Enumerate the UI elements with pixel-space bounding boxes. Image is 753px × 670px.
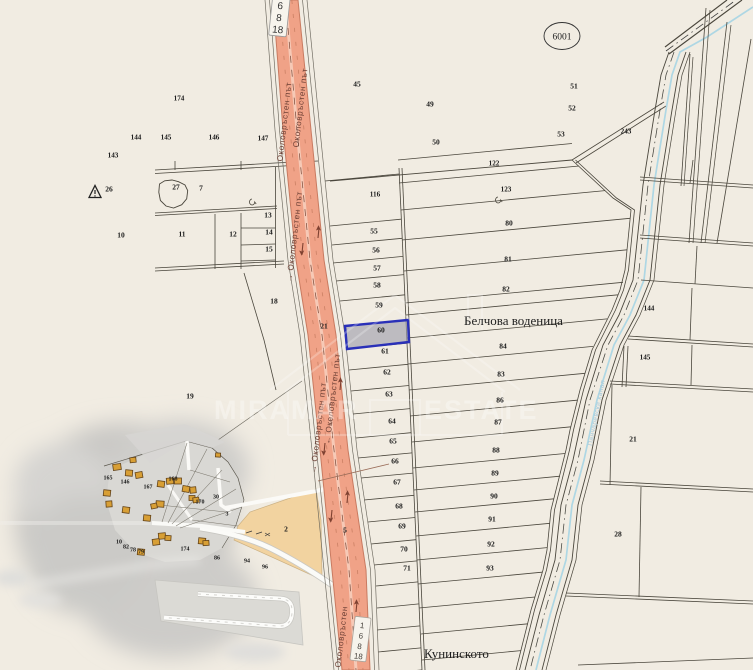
svg-text:147: 147 [258, 135, 269, 143]
svg-text:68: 68 [395, 502, 403, 511]
svg-text:18: 18 [353, 651, 363, 661]
svg-text:96: 96 [262, 565, 268, 571]
svg-text:167: 167 [144, 485, 153, 491]
svg-text:123: 123 [501, 186, 512, 194]
svg-text:26: 26 [105, 185, 113, 194]
svg-text:18: 18 [272, 24, 285, 36]
svg-text:55: 55 [370, 227, 378, 236]
svg-text:3: 3 [226, 512, 229, 518]
svg-text:83: 83 [497, 370, 505, 379]
svg-text:53: 53 [557, 130, 565, 139]
svg-text:58: 58 [373, 281, 381, 290]
svg-text:80: 80 [505, 219, 513, 228]
svg-text:60: 60 [377, 326, 385, 335]
svg-text:145: 145 [640, 354, 651, 362]
svg-text:86: 86 [496, 396, 504, 405]
svg-text:MIRAMAR: MIRAMAR [214, 395, 358, 425]
svg-text:59: 59 [375, 301, 383, 310]
svg-text:69: 69 [398, 522, 406, 531]
svg-text:146: 146 [209, 134, 220, 142]
svg-text:52: 52 [568, 104, 576, 113]
svg-text:122: 122 [489, 160, 500, 168]
svg-text:78: 78 [130, 548, 136, 554]
svg-text:67: 67 [393, 478, 401, 487]
svg-text:243: 243 [621, 128, 632, 136]
svg-text:81: 81 [504, 255, 512, 264]
svg-text:18: 18 [270, 297, 278, 306]
svg-text:Белчова воденица: Белчова воденица [464, 313, 563, 328]
svg-text:Кунинското: Кунинското [424, 646, 489, 661]
svg-text:82: 82 [502, 285, 510, 294]
svg-text:92: 92 [487, 540, 495, 549]
svg-text:94: 94 [244, 559, 250, 565]
svg-text:28: 28 [614, 530, 622, 539]
svg-text:15: 15 [265, 245, 273, 254]
svg-text:66: 66 [391, 457, 399, 466]
svg-text:49: 49 [426, 100, 434, 109]
svg-text:10: 10 [116, 540, 122, 546]
svg-text:84: 84 [499, 342, 507, 351]
svg-text:143: 143 [108, 152, 119, 160]
svg-text:61: 61 [381, 347, 389, 356]
svg-text:93: 93 [486, 564, 494, 573]
svg-text:71: 71 [403, 564, 411, 573]
svg-text:87: 87 [494, 418, 502, 427]
svg-text:65: 65 [389, 437, 397, 446]
svg-text:6001: 6001 [553, 33, 572, 43]
svg-text:91: 91 [488, 515, 496, 524]
svg-text:62: 62 [383, 368, 391, 377]
svg-text:170: 170 [196, 500, 205, 506]
svg-text:165: 165 [104, 476, 113, 482]
svg-text:21: 21 [629, 435, 637, 444]
svg-text:2: 2 [284, 525, 288, 534]
svg-text:57: 57 [373, 264, 381, 273]
svg-text:56: 56 [372, 246, 380, 255]
svg-text:ESTATE: ESTATE [424, 395, 539, 425]
svg-text:82: 82 [123, 545, 129, 551]
svg-text:70: 70 [400, 545, 408, 554]
svg-text:89: 89 [491, 469, 499, 478]
svg-text:7: 7 [199, 184, 203, 193]
svg-text:51: 51 [570, 82, 578, 91]
svg-text:14: 14 [265, 228, 273, 237]
svg-text:90: 90 [490, 492, 498, 501]
svg-text:174: 174 [181, 547, 190, 553]
svg-text:86: 86 [214, 556, 220, 562]
svg-text:45: 45 [353, 80, 361, 89]
svg-text:12: 12 [229, 230, 237, 239]
svg-text:27: 27 [172, 183, 180, 192]
svg-text:64: 64 [388, 417, 396, 426]
svg-text:19: 19 [186, 392, 194, 401]
svg-text:50: 50 [432, 138, 440, 147]
svg-text:79: 79 [138, 550, 144, 556]
svg-text:145: 145 [161, 134, 172, 142]
svg-text:13: 13 [264, 211, 272, 220]
svg-text:146: 146 [121, 480, 130, 486]
svg-text:144: 144 [131, 134, 142, 142]
svg-text:5: 5 [343, 526, 347, 535]
svg-text:21: 21 [320, 322, 328, 331]
svg-text:11: 11 [178, 230, 185, 239]
svg-text:174: 174 [174, 95, 185, 103]
svg-text:116: 116 [370, 191, 381, 199]
svg-text:168: 168 [169, 477, 178, 483]
svg-text:63: 63 [385, 390, 393, 399]
svg-text:144: 144 [644, 305, 655, 313]
svg-text:10: 10 [117, 231, 125, 240]
svg-text:30: 30 [213, 495, 219, 501]
svg-text:88: 88 [492, 446, 500, 455]
